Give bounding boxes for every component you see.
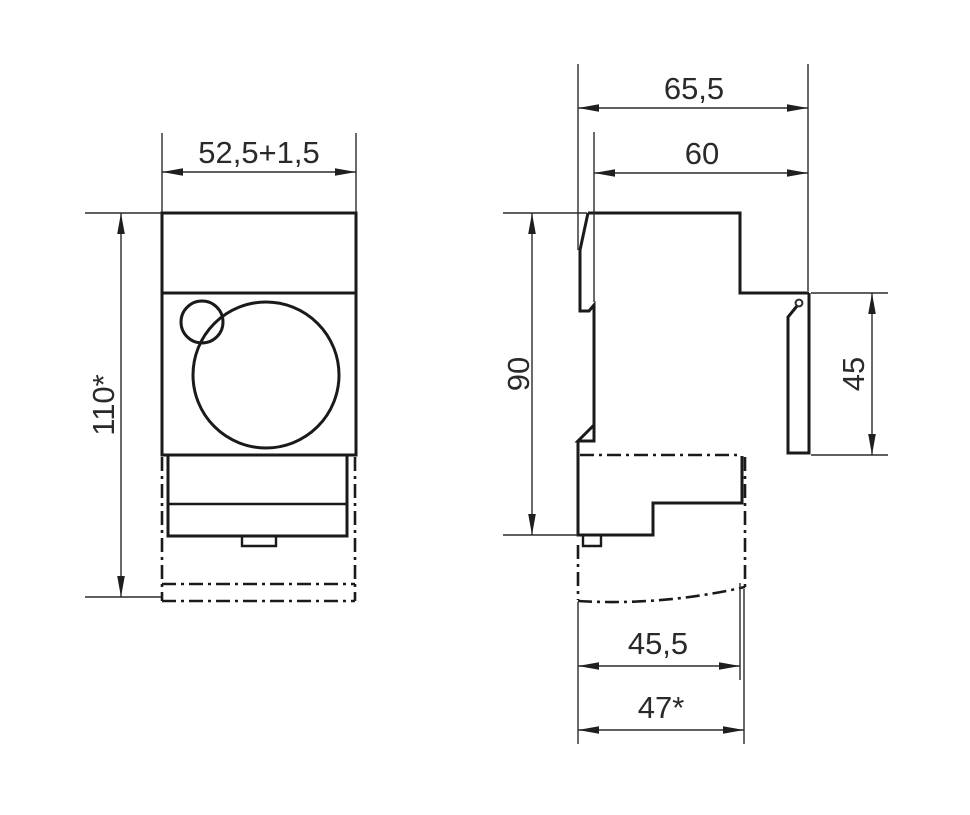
front-dial-circle <box>193 302 339 448</box>
side-view <box>578 213 809 602</box>
cover-height-dimension: 45 <box>811 293 888 455</box>
front-height-label: 110* <box>86 374 121 436</box>
side-hinged-cover <box>788 293 809 453</box>
dimensional-drawing: 52,5+1,5 110* 65,5 <box>0 0 970 815</box>
bottom-overall-depth-label: 47* <box>638 690 685 725</box>
side-body-depth-dimension: 60 <box>594 132 808 302</box>
technical-drawing-page: 52,5+1,5 110* 65,5 <box>0 0 970 815</box>
side-body-depth-label: 60 <box>685 136 719 171</box>
side-top-profile <box>588 213 809 293</box>
cover-height-label: 45 <box>836 357 871 391</box>
side-bottom-notch <box>583 535 601 546</box>
bottom-depth-dimensions: 45,5 47* <box>578 583 744 744</box>
side-rail-claw <box>578 425 594 441</box>
side-overall-depth-dimension: 65,5 <box>578 64 808 291</box>
hinge-pivot-circle <box>796 300 803 307</box>
front-view <box>162 213 356 601</box>
side-phantom-swing-arc <box>578 587 745 602</box>
side-left-profile-upper <box>580 213 594 425</box>
bottom-depth-label: 45,5 <box>628 626 688 661</box>
front-width-dimension: 52,5+1,5 <box>162 133 356 212</box>
side-body-height-dimension: 90 <box>501 213 587 535</box>
front-terminal-cover <box>168 455 347 536</box>
front-height-dimension: 110* <box>85 213 161 597</box>
side-overall-depth-label: 65,5 <box>664 71 724 106</box>
side-body-height-label: 90 <box>501 357 536 391</box>
front-width-label: 52,5+1,5 <box>198 135 320 170</box>
